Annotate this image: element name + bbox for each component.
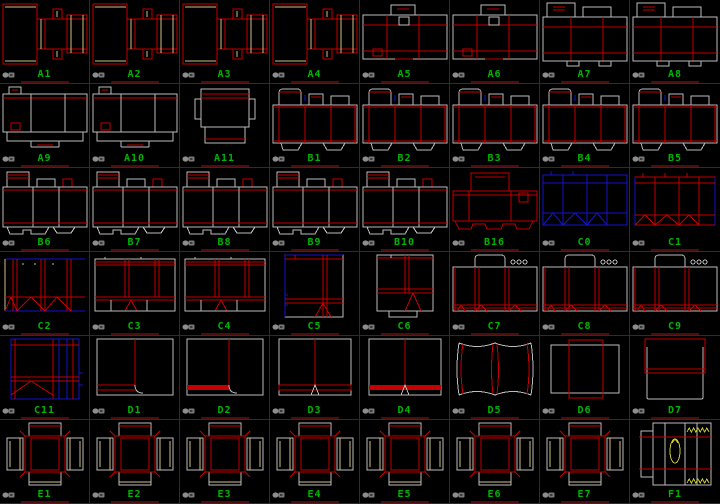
label-underline [21, 333, 69, 335]
dieline-thumbnail [631, 85, 719, 151]
template-cell-d7[interactable]: D7 [630, 336, 720, 420]
template-label: E5 [360, 490, 449, 500]
dieline-thumbnail [631, 1, 719, 67]
label-underline [381, 249, 429, 251]
label-underline [561, 417, 609, 419]
template-label: D4 [360, 406, 449, 416]
dieline-thumbnail [1, 421, 89, 487]
dieline-thumbnail [451, 1, 539, 67]
dieline-thumbnail [541, 1, 629, 67]
template-cell-b3[interactable]: B3 [450, 84, 540, 168]
template-label: A5 [360, 70, 449, 80]
label-underline [111, 333, 159, 335]
template-label: E1 [0, 490, 89, 500]
label-underline [291, 417, 339, 419]
label-underline [381, 501, 429, 503]
label-underline [111, 165, 159, 167]
template-label: C1 [630, 238, 720, 248]
label-underline [111, 417, 159, 419]
dieline-thumbnail [181, 1, 269, 67]
dieline-thumbnail [181, 337, 269, 403]
template-cell-b16[interactable]: B16 [450, 168, 540, 252]
template-cell-c9[interactable]: C9 [630, 252, 720, 336]
template-cell-a4[interactable]: A4 [270, 0, 360, 84]
dieline-thumbnail [1, 337, 89, 403]
label-underline [651, 501, 699, 503]
label-underline [201, 417, 249, 419]
template-label: D3 [270, 406, 359, 416]
dieline-thumbnail [271, 85, 359, 151]
label-underline [111, 249, 159, 251]
template-cell-b6[interactable]: B6 [0, 168, 90, 252]
template-label: C0 [540, 238, 629, 248]
template-label: D2 [180, 406, 269, 416]
label-underline [21, 81, 69, 83]
dieline-thumbnail [1, 1, 89, 67]
label-underline [651, 165, 699, 167]
template-cell-c0[interactable]: C0 [540, 168, 630, 252]
template-label: C7 [450, 322, 539, 332]
dieline-thumbnail [1, 169, 89, 235]
label-underline [21, 249, 69, 251]
label-underline [21, 501, 69, 503]
dieline-thumbnail [541, 85, 629, 151]
label-underline [381, 417, 429, 419]
label-underline [471, 417, 519, 419]
template-label: C9 [630, 322, 720, 332]
template-cell-a9[interactable]: A9 [0, 84, 90, 168]
dieline-thumbnail [1, 85, 89, 151]
label-underline [291, 249, 339, 251]
dieline-thumbnail [451, 421, 539, 487]
label-underline [291, 165, 339, 167]
template-label: C2 [0, 322, 89, 332]
template-label: C4 [180, 322, 269, 332]
dieline-thumbnail [181, 421, 269, 487]
template-label: B16 [450, 238, 539, 248]
dieline-thumbnail [631, 253, 719, 319]
template-label: B2 [360, 154, 449, 164]
template-grid: A1A2A3A4A5A6A7A8A9A10A11B1B2B3B4B5B6B7B8… [0, 0, 720, 504]
template-cell-e5[interactable]: E5 [360, 420, 450, 504]
template-label: E2 [90, 490, 179, 500]
dieline-thumbnail [181, 169, 269, 235]
template-label: D6 [540, 406, 629, 416]
dieline-thumbnail [361, 253, 449, 319]
label-underline [651, 417, 699, 419]
template-label: E4 [270, 490, 359, 500]
label-underline [381, 81, 429, 83]
dieline-thumbnail [361, 421, 449, 487]
label-underline [21, 165, 69, 167]
template-label: D5 [450, 406, 539, 416]
dieline-thumbnail [451, 169, 539, 235]
label-underline [561, 333, 609, 335]
template-cell-e2[interactable]: E2 [90, 420, 180, 504]
template-cell-d5[interactable]: D5 [450, 336, 540, 420]
template-cell-a7[interactable]: A7 [540, 0, 630, 84]
template-cell-f1[interactable]: F1 [630, 420, 720, 504]
template-cell-d3[interactable]: D3 [270, 336, 360, 420]
dieline-thumbnail [631, 337, 719, 403]
template-label: A9 [0, 154, 89, 164]
label-underline [201, 333, 249, 335]
dieline-thumbnail [271, 169, 359, 235]
template-label: A11 [180, 154, 269, 164]
template-cell-b4[interactable]: B4 [540, 84, 630, 168]
label-underline [561, 249, 609, 251]
dieline-thumbnail [91, 1, 179, 67]
template-cell-b10[interactable]: B10 [360, 168, 450, 252]
template-cell-d2[interactable]: D2 [180, 336, 270, 420]
dieline-thumbnail [541, 169, 629, 235]
template-cell-c7[interactable]: C7 [450, 252, 540, 336]
dieline-thumbnail [1, 253, 89, 319]
template-label: A3 [180, 70, 269, 80]
dieline-thumbnail [541, 421, 629, 487]
template-cell-e6[interactable]: E6 [450, 420, 540, 504]
template-cell-c3[interactable]: C3 [90, 252, 180, 336]
template-label: B10 [360, 238, 449, 248]
template-cell-b8[interactable]: B8 [180, 168, 270, 252]
dieline-thumbnail [271, 253, 359, 319]
template-cell-e3[interactable]: E3 [180, 420, 270, 504]
template-label: E3 [180, 490, 269, 500]
template-cell-a10[interactable]: A10 [90, 84, 180, 168]
label-underline [561, 501, 609, 503]
template-cell-a11[interactable]: A11 [180, 84, 270, 168]
label-underline [471, 81, 519, 83]
template-label: F1 [630, 490, 720, 500]
dieline-thumbnail [451, 337, 539, 403]
label-underline [651, 333, 699, 335]
dieline-thumbnail [631, 169, 719, 235]
label-underline [381, 333, 429, 335]
template-cell-c2[interactable]: C2 [0, 252, 90, 336]
label-underline [201, 165, 249, 167]
template-cell-c5[interactable]: C5 [270, 252, 360, 336]
template-label: A8 [630, 70, 720, 80]
dieline-thumbnail [271, 421, 359, 487]
template-label: B9 [270, 238, 359, 248]
template-label: C8 [540, 322, 629, 332]
dieline-thumbnail [181, 85, 269, 151]
label-underline [381, 165, 429, 167]
label-underline [201, 249, 249, 251]
dieline-thumbnail [361, 337, 449, 403]
template-label: E6 [450, 490, 539, 500]
label-underline [471, 165, 519, 167]
dieline-thumbnail [181, 253, 269, 319]
template-label: A4 [270, 70, 359, 80]
dieline-thumbnail [631, 421, 719, 487]
template-label: A1 [0, 70, 89, 80]
template-label: B6 [0, 238, 89, 248]
template-cell-a8[interactable]: A8 [630, 0, 720, 84]
template-cell-a6[interactable]: A6 [450, 0, 540, 84]
template-label: C11 [0, 406, 89, 416]
dieline-thumbnail [451, 253, 539, 319]
label-underline [651, 81, 699, 83]
dieline-thumbnail [91, 85, 179, 151]
template-cell-b1[interactable]: B1 [270, 84, 360, 168]
template-cell-a2[interactable]: A2 [90, 0, 180, 84]
template-cell-e1[interactable]: E1 [0, 420, 90, 504]
dieline-thumbnail [361, 85, 449, 151]
label-underline [651, 249, 699, 251]
template-label: C3 [90, 322, 179, 332]
template-label: A10 [90, 154, 179, 164]
label-underline [471, 501, 519, 503]
label-underline [291, 333, 339, 335]
label-underline [201, 81, 249, 83]
dieline-thumbnail [451, 85, 539, 151]
label-underline [201, 501, 249, 503]
template-cell-d1[interactable]: D1 [90, 336, 180, 420]
template-cell-c6[interactable]: C6 [360, 252, 450, 336]
template-cell-c4[interactable]: C4 [180, 252, 270, 336]
template-label: D7 [630, 406, 720, 416]
dieline-thumbnail [361, 1, 449, 67]
dieline-thumbnail [271, 1, 359, 67]
label-underline [111, 501, 159, 503]
template-label: A6 [450, 70, 539, 80]
template-cell-c1[interactable]: C1 [630, 168, 720, 252]
template-cell-a5[interactable]: A5 [360, 0, 450, 84]
label-underline [111, 81, 159, 83]
template-cell-b9[interactable]: B9 [270, 168, 360, 252]
template-cell-b7[interactable]: B7 [90, 168, 180, 252]
template-label: C6 [360, 322, 449, 332]
label-underline [561, 165, 609, 167]
template-label: B1 [270, 154, 359, 164]
template-cell-e4[interactable]: E4 [270, 420, 360, 504]
dieline-thumbnail [91, 169, 179, 235]
label-underline [291, 81, 339, 83]
template-cell-b5[interactable]: B5 [630, 84, 720, 168]
template-label: B3 [450, 154, 539, 164]
dieline-thumbnail [91, 337, 179, 403]
template-label: D1 [90, 406, 179, 416]
template-label: A2 [90, 70, 179, 80]
dieline-thumbnail [541, 337, 629, 403]
dieline-thumbnail [91, 421, 179, 487]
template-cell-d4[interactable]: D4 [360, 336, 450, 420]
label-underline [471, 249, 519, 251]
template-cell-c11[interactable]: C11 [0, 336, 90, 420]
template-label: B5 [630, 154, 720, 164]
template-label: C5 [270, 322, 359, 332]
template-cell-e7[interactable]: E7 [540, 420, 630, 504]
dieline-thumbnail [361, 169, 449, 235]
template-label: A7 [540, 70, 629, 80]
template-cell-c8[interactable]: C8 [540, 252, 630, 336]
template-label: B8 [180, 238, 269, 248]
label-underline [561, 81, 609, 83]
dieline-thumbnail [541, 253, 629, 319]
template-cell-a3[interactable]: A3 [180, 0, 270, 84]
template-label: E7 [540, 490, 629, 500]
label-underline [21, 417, 69, 419]
template-cell-a1[interactable]: A1 [0, 0, 90, 84]
template-cell-b2[interactable]: B2 [360, 84, 450, 168]
dieline-thumbnail [91, 253, 179, 319]
template-label: B4 [540, 154, 629, 164]
label-underline [291, 501, 339, 503]
template-label: B7 [90, 238, 179, 248]
label-underline [471, 333, 519, 335]
template-cell-d6[interactable]: D6 [540, 336, 630, 420]
dieline-thumbnail [271, 337, 359, 403]
